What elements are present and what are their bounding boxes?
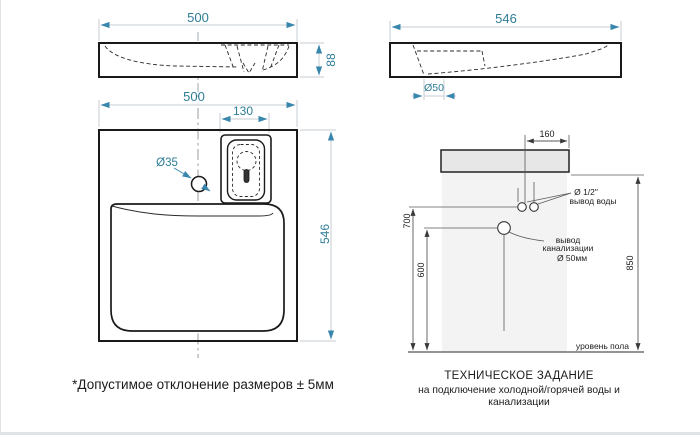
sewage-outlet (498, 222, 511, 235)
install-overall-height-dimension: 850 (625, 255, 635, 270)
install-water-height-dimension: 700 (402, 213, 412, 228)
spec-title: ТЕХНИЧЕСКОЕ ЗАДАНИЕ (393, 370, 645, 383)
faucet-hole-leader (174, 168, 191, 178)
sewage-note-diameter: Ø 50мм (557, 253, 587, 263)
spec-caption: ТЕХНИЧЕСКОЕ ЗАДАНИЕ на подключение холод… (393, 370, 645, 409)
overflow-slot (244, 170, 249, 183)
sewage-note-line2: канализации (543, 243, 594, 253)
basin-outline (111, 204, 284, 331)
side-width-dimension: 546 (495, 11, 517, 26)
top-view: 500 130 546 Ø35 (99, 89, 336, 358)
water-outlet-left (518, 203, 527, 212)
installation-view: 160 700 600 850 уровень пола Ø 1/2" выво… (402, 129, 644, 352)
top-view-depth-dimension: 546 (318, 224, 332, 244)
wall-area (442, 172, 567, 352)
floor-level-label: уровень пола (576, 341, 629, 351)
side-drain-dimension: Ø50 (424, 82, 444, 94)
top-view-width-dimension: 500 (183, 89, 205, 104)
front-width-dimension: 500 (187, 10, 209, 25)
tolerance-note: *Допустимое отклонение размеров ± 5мм (63, 377, 343, 393)
sink-slab (441, 150, 569, 172)
drain-box (221, 135, 271, 203)
front-elevation-view: 500 88 (99, 10, 338, 99)
front-height-dimension: 88 (324, 53, 338, 67)
water-outlet-right (530, 203, 539, 212)
faucet-hole (192, 177, 207, 192)
install-offset-dimension: 160 (539, 129, 554, 139)
side-body-outline (390, 43, 621, 77)
side-elevation-view: 546 Ø50 (390, 11, 621, 100)
spec-subtitle: на подключение холодной/горячей воды и к… (393, 385, 645, 409)
top-view-drain-width-dimension: 130 (233, 104, 253, 118)
install-drain-height-dimension: 600 (416, 262, 426, 277)
water-note-text: вывод воды (570, 196, 617, 206)
technical-drawing-sheet: 500 88 546 Ø50 (0, 0, 700, 435)
faucet-hole-dimension: Ø35 (156, 157, 178, 169)
